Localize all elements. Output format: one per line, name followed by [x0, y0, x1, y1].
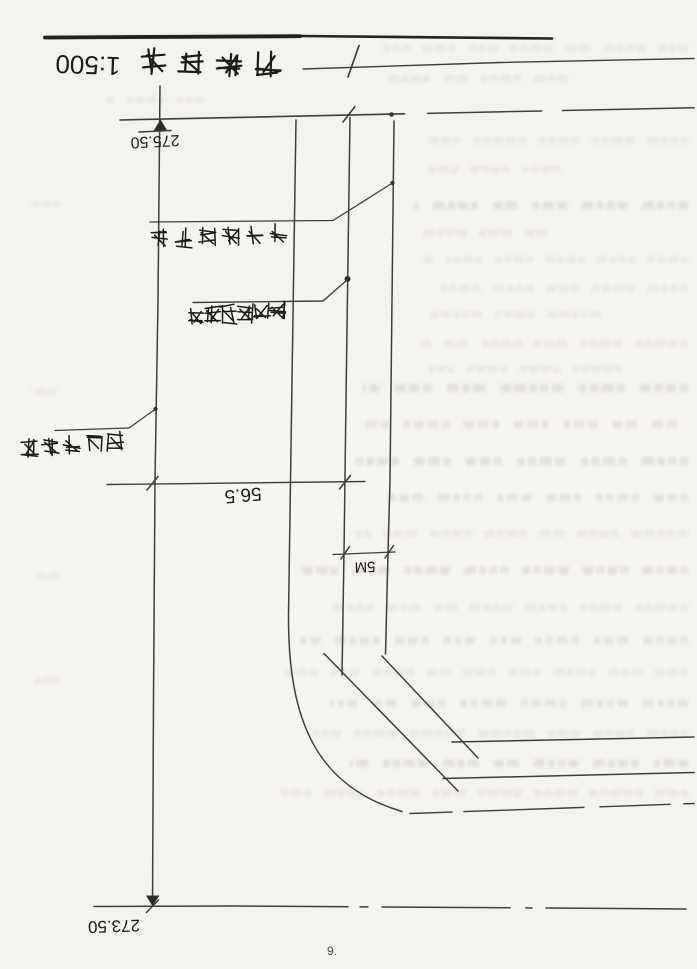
svg-text:5M: 5M — [354, 558, 375, 576]
svg-text:273.50: 273.50 — [88, 916, 141, 937]
svg-text:1:500: 1:500 — [55, 49, 121, 81]
svg-text:9.: 9. — [327, 944, 337, 958]
svg-text:56.5: 56.5 — [224, 482, 263, 506]
svg-text:275.50: 275.50 — [130, 131, 180, 151]
